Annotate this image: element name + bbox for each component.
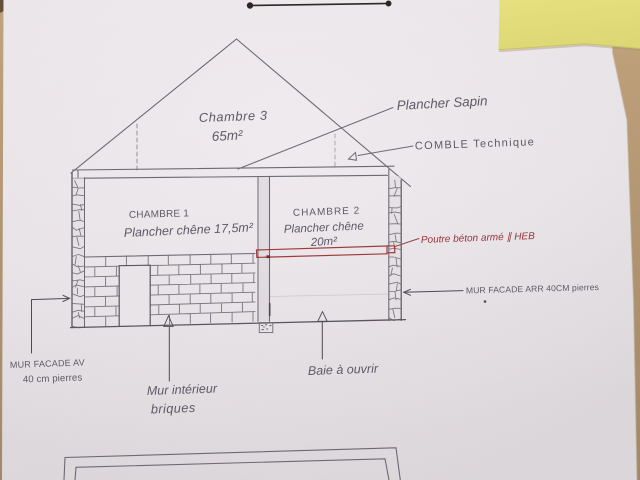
- svg-text:40 cm pierres: 40 cm pierres: [23, 372, 83, 385]
- svg-text:65m²: 65m²: [211, 127, 243, 144]
- svg-text:20m²: 20m²: [310, 236, 339, 249]
- svg-text:CHAMBRE 1: CHAMBRE 1: [129, 208, 190, 221]
- svg-text:Mur intérieur: Mur intérieur: [147, 381, 218, 397]
- svg-text:briques: briques: [151, 400, 196, 417]
- svg-text:CHAMBRE 2: CHAMBRE 2: [293, 206, 361, 219]
- svg-text:Baie à ouvrir: Baie à ouvrir: [308, 362, 379, 378]
- svg-text:Chambre 3: Chambre 3: [199, 108, 268, 125]
